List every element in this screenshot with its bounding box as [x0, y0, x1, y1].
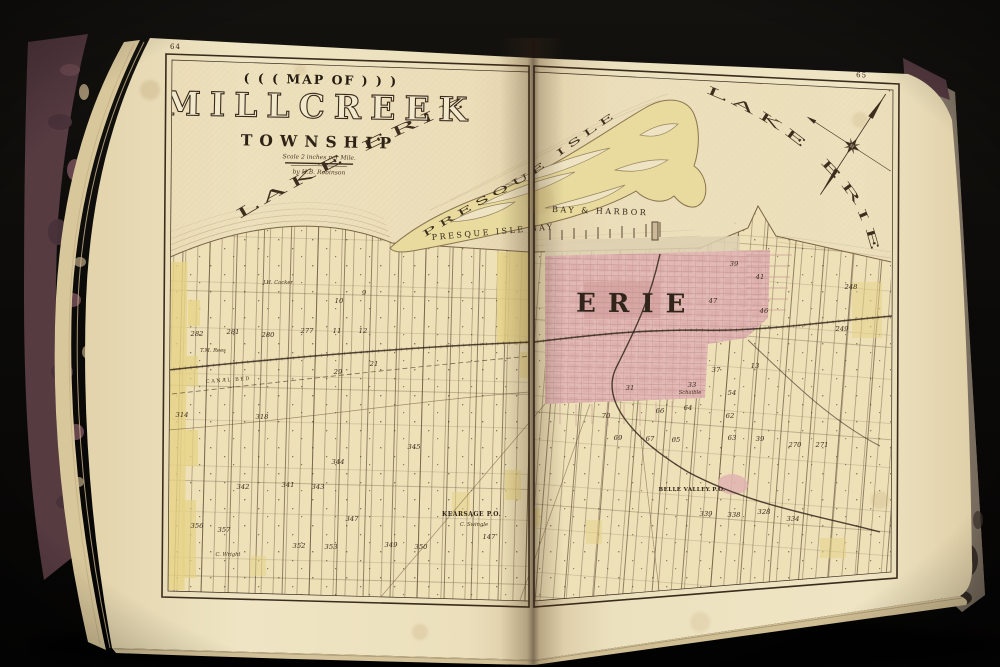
atlas-photo-svg: LAKE ERIE LAKE ERIE PRESQUE ISLE PRESQUE… — [0, 0, 1000, 667]
photo-vignette — [0, 0, 1000, 667]
atlas-photo: LAKE ERIE LAKE ERIE PRESQUE ISLE PRESQUE… — [0, 0, 1000, 667]
